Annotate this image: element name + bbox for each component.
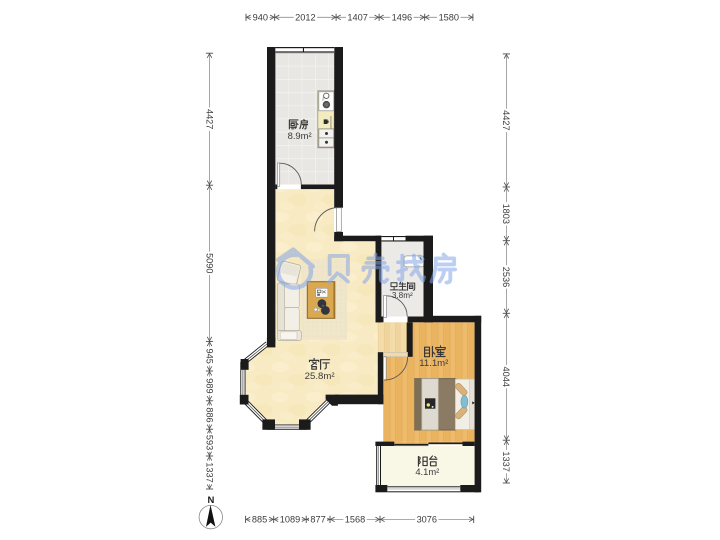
svg-text:5090: 5090 xyxy=(204,253,214,273)
svg-text:945: 945 xyxy=(204,349,214,364)
svg-text:1803: 1803 xyxy=(501,204,511,224)
svg-text:1496: 1496 xyxy=(392,13,412,23)
svg-text:1568: 1568 xyxy=(345,515,365,525)
svg-text:8.9m²: 8.9m² xyxy=(288,130,312,141)
svg-text:1580: 1580 xyxy=(439,13,459,23)
svg-text:4044: 4044 xyxy=(501,366,511,386)
svg-text:11.1m²: 11.1m² xyxy=(419,358,449,369)
svg-text:1089: 1089 xyxy=(280,515,300,525)
svg-text:4.1m²: 4.1m² xyxy=(415,466,439,477)
svg-text:25.8m²: 25.8m² xyxy=(305,371,336,382)
svg-text:593: 593 xyxy=(204,435,214,450)
svg-text:877: 877 xyxy=(310,515,325,525)
svg-text:2536: 2536 xyxy=(501,267,511,287)
svg-text:3076: 3076 xyxy=(417,515,437,525)
svg-text:1337: 1337 xyxy=(501,451,511,471)
svg-text:940: 940 xyxy=(253,13,268,23)
svg-text:2012: 2012 xyxy=(295,13,315,23)
svg-text:4427: 4427 xyxy=(204,109,214,129)
svg-text:885: 885 xyxy=(252,515,267,525)
svg-text:N: N xyxy=(207,495,214,506)
svg-text:1337: 1337 xyxy=(204,462,214,482)
svg-text:989: 989 xyxy=(204,378,214,393)
svg-text:886: 886 xyxy=(204,407,214,422)
svg-text:4427: 4427 xyxy=(501,110,511,130)
svg-text:3.8m²: 3.8m² xyxy=(392,291,413,300)
svg-text:1407: 1407 xyxy=(347,13,367,23)
